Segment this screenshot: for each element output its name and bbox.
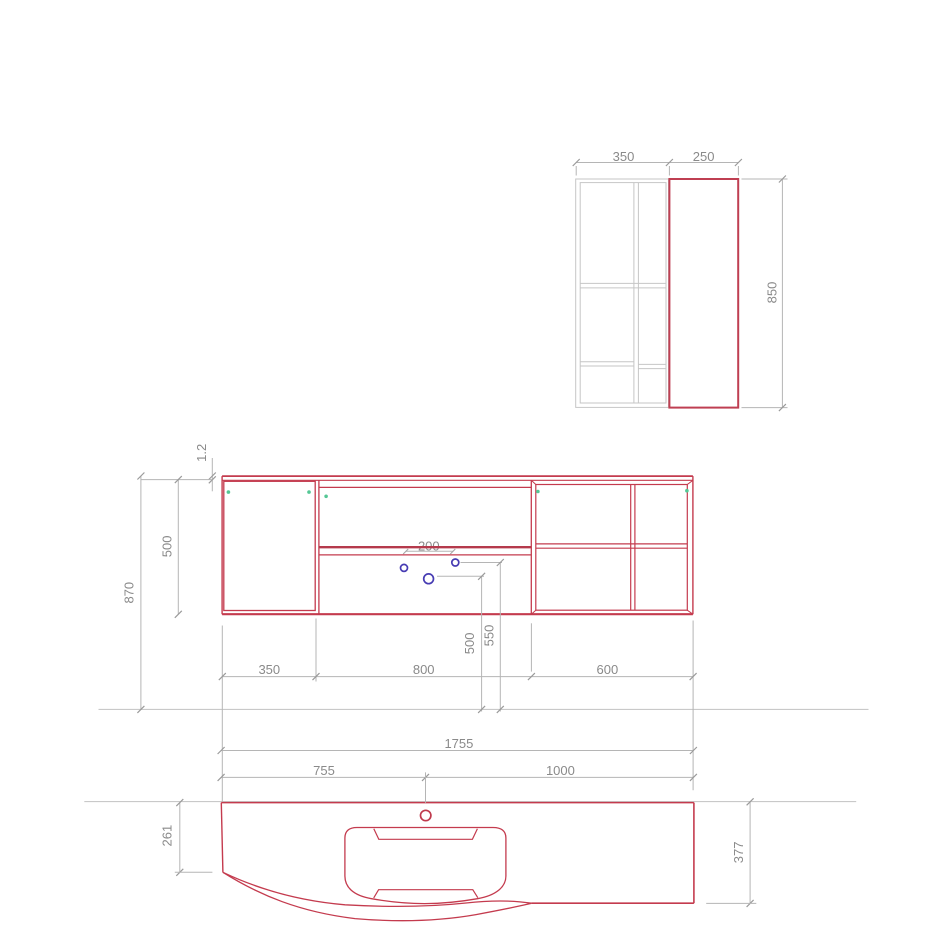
svg-text:1755: 1755 — [444, 736, 473, 751]
svg-text:261: 261 — [160, 825, 175, 847]
svg-text:350: 350 — [613, 149, 635, 164]
svg-text:377: 377 — [731, 842, 746, 864]
svg-text:600: 600 — [597, 662, 619, 677]
svg-text:550: 550 — [482, 625, 497, 647]
svg-text:500: 500 — [159, 536, 174, 558]
svg-text:870: 870 — [121, 582, 136, 604]
svg-text:850: 850 — [765, 282, 780, 304]
svg-text:1.2: 1.2 — [194, 444, 209, 462]
svg-text:1000: 1000 — [546, 763, 575, 778]
svg-text:350: 350 — [258, 662, 280, 677]
svg-text:250: 250 — [693, 149, 715, 164]
svg-text:755: 755 — [313, 763, 335, 778]
svg-text:800: 800 — [413, 662, 435, 677]
svg-text:500: 500 — [462, 633, 477, 655]
